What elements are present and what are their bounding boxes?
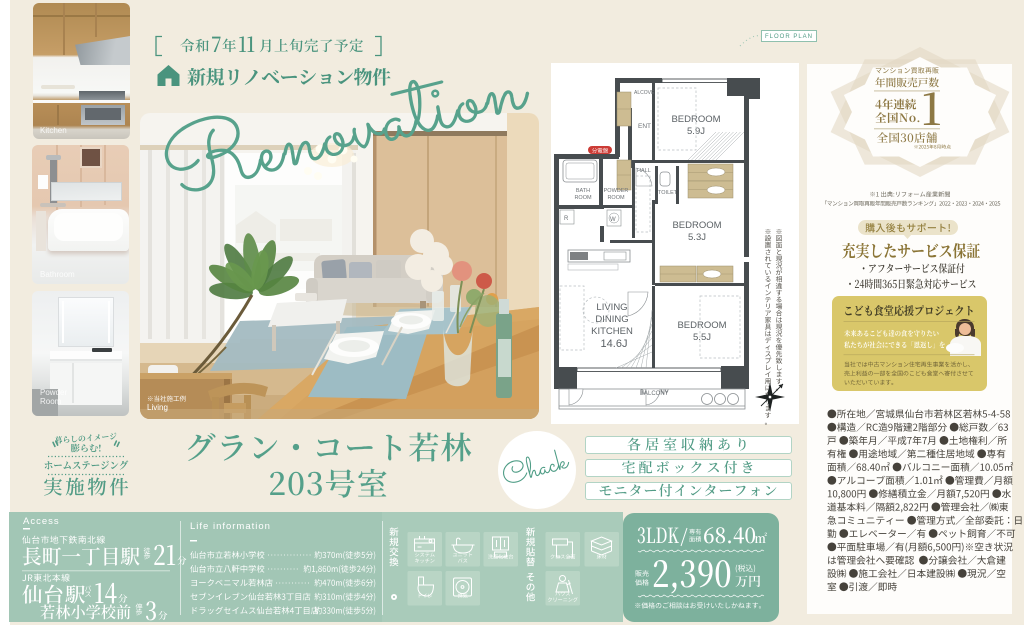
svg-text:LIVING: LIVING [596,302,627,313]
svg-text:KITCHEN: KITCHEN [591,326,633,337]
svg-text:ALCOVE: ALCOVE [634,90,655,96]
svg-text:R: R [564,216,569,222]
svg-text:W: W [610,217,616,223]
svg-text:BEDROOM: BEDROOM [677,320,726,331]
svg-text:DINING: DINING [595,314,628,325]
svg-text:BEDROOM: BEDROOM [672,220,721,231]
svg-text:Access: Access [23,516,60,527]
svg-text:14.6J: 14.6J [601,338,628,350]
svg-text:ROOM: ROOM [607,195,625,201]
svg-text:HALL: HALL [637,168,651,174]
svg-text:5.5J: 5.5J [693,332,711,343]
svg-text:BATH: BATH [576,188,590,194]
svg-text:TOILET: TOILET [658,190,678,196]
svg-text:POWDER: POWDER [604,188,629,194]
svg-text:ROOM: ROOM [574,195,592,201]
svg-text:5.3J: 5.3J [688,232,706,243]
svg-text:Life information: Life information [190,521,271,532]
svg-text:ENT: ENT [638,123,651,130]
svg-text:BALCONY: BALCONY [640,391,669,397]
